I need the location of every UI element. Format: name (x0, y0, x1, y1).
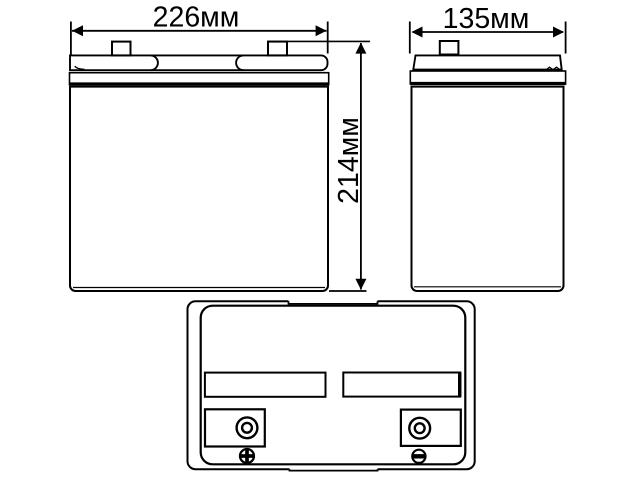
svg-text:214мм: 214мм (333, 117, 365, 204)
svg-text:226мм: 226мм (153, 2, 240, 34)
svg-text:135мм: 135мм (443, 3, 530, 35)
